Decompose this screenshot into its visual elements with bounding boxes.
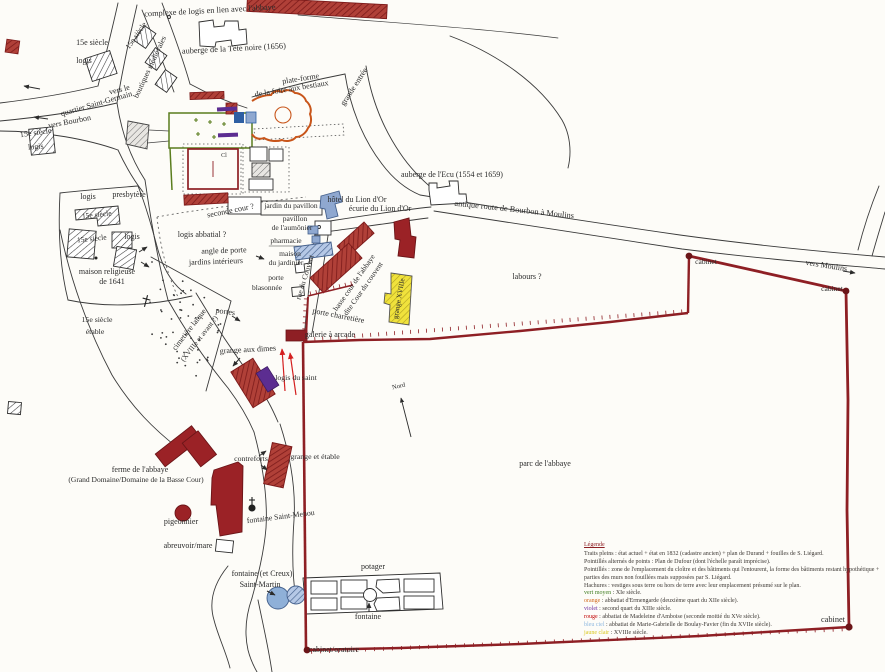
abbey-site-plan: complexe de logis en lien avec l'abbayea… — [0, 0, 885, 672]
galerie-a-arcade-building — [286, 330, 307, 341]
map-label: maison religieuse — [79, 267, 136, 276]
fontaine-saint-menou-icon — [249, 497, 255, 511]
map-label: cabinet/oratoire — [309, 645, 360, 654]
cemetery-cross-icon — [141, 294, 152, 308]
map-label: grange et étable — [290, 452, 340, 461]
map-label: de 1641 — [99, 277, 125, 286]
legend-line: Pointillés : zone de l'emplacement du cl… — [584, 567, 884, 583]
map-label: logis du saint — [275, 373, 317, 382]
legend-color-key: jaune clair — [584, 630, 609, 636]
legend-color-key: violet — [584, 606, 598, 612]
arrow-saint-germain — [24, 86, 40, 89]
red-arrow-logis-saint — [282, 349, 285, 391]
pillar-17c-blue — [246, 112, 256, 123]
map-label: cabinet — [695, 257, 718, 266]
map-label: labours ? — [512, 272, 542, 281]
ecurie-building — [394, 218, 416, 258]
map-label: du jardinier — [269, 258, 304, 267]
legend-title: Légende — [584, 542, 884, 550]
legend-line: bleu ciel : abbatiat de Marie-Gabrielle … — [584, 622, 884, 630]
map-label: fontaine — [355, 612, 382, 621]
map-label: galerie à arcade — [305, 330, 356, 339]
map-label: potager — [361, 562, 385, 571]
fontaine-saint-martin — [267, 587, 289, 609]
legend-line: Pointillés alternés de points : Plan de … — [584, 559, 884, 567]
small-building — [7, 401, 21, 414]
legend-entries: Traits pleins : état actuel + état en 18… — [584, 551, 884, 638]
map-label: de l'aumônier — [272, 223, 313, 232]
potager-fountain — [364, 589, 377, 602]
map-label: fontaine (et Creux) — [232, 569, 293, 578]
map-label: pharmacie — [270, 236, 302, 245]
map-label: abreuvoir/mare — [164, 541, 213, 550]
grange-etable-building — [264, 443, 292, 488]
porch-tower — [126, 121, 149, 149]
map-label: 15e siècle — [76, 38, 108, 47]
arrow-grange-dimes — [233, 358, 240, 366]
legend-line: orange : abbatiat d'Ermengarde (deuxième… — [584, 598, 884, 606]
map-label: hôtel du Lion d'Or — [328, 195, 387, 204]
map-label: grange aux dimes — [219, 344, 276, 356]
map-label: logis — [28, 141, 44, 151]
map-label: étable — [86, 327, 105, 336]
map-label: vers Moulins — [805, 258, 848, 273]
map-label: parc de l'abbaye — [519, 459, 571, 468]
map-label: (Grand Domaine/Domaine de la Basse Cour) — [68, 475, 204, 484]
blue-annex — [312, 236, 320, 243]
map-label: jardins intérieurs — [188, 256, 243, 267]
map-label: porte — [268, 273, 284, 282]
map-label: logis abbatial ? — [178, 230, 227, 239]
map-label: auberge de l'Ecu (1554 et 1659) — [401, 170, 503, 179]
north-range-15c — [190, 91, 224, 99]
map-label: logis — [124, 232, 140, 241]
legend-line: rouge : abbatiat de Madeleine d'Amboise … — [584, 614, 884, 622]
map-label: complexe de logis en lien avec l'abbaye — [144, 3, 276, 19]
map-label: Saint-Martin — [240, 580, 281, 589]
map-label: logis — [80, 192, 96, 201]
map-label: angle de porte — [201, 245, 247, 256]
small-red-building — [5, 39, 20, 54]
legend-line: violet : second quart du XIIIe siècle. — [584, 606, 884, 614]
legend-color-key: vert moyen — [584, 590, 611, 596]
map-label: Cl — [221, 153, 227, 159]
boutique-building — [155, 70, 177, 93]
legend-line: Traits pleins : état actuel + état en 18… — [584, 551, 884, 559]
map-label: auberge de la Tête noire (1656) — [182, 41, 287, 55]
map-label: maison — [279, 249, 301, 258]
arrows — [24, 86, 855, 612]
abbey-church — [126, 90, 311, 205]
map-label: logis — [76, 56, 92, 65]
creux-saint-martin — [287, 586, 305, 604]
map-label: contreforts — [234, 454, 268, 463]
map-label: portes — [215, 306, 236, 318]
crossing-13c-purple — [218, 133, 238, 138]
east-range — [249, 147, 283, 190]
legend-line: jaune clair : XVIIIe siècle. — [584, 630, 884, 638]
apse-interior — [275, 107, 291, 123]
map-label: ferme de l'abbaye — [112, 465, 169, 474]
map-label: 15e siècle — [82, 315, 113, 324]
abreuvoir-mare — [215, 539, 233, 553]
map-label: quartier Saint-Germain — [60, 89, 134, 118]
legend-line: Hachures : vestiges sous terre ou hors d… — [584, 583, 884, 591]
arrow-bourbon — [34, 117, 48, 119]
pillar-17c-blue — [234, 112, 244, 123]
north-arrow — [401, 398, 411, 437]
legend-color-key: bleu ciel — [584, 622, 605, 628]
map-label: pigeonnier — [164, 517, 199, 526]
legend-color-key: orange — [584, 598, 600, 604]
map-label: cabinet — [821, 284, 844, 293]
map-label: Nord — [391, 382, 406, 392]
legend: Légende Traits pleins : état actuel + ét… — [584, 542, 884, 638]
south-range-red — [184, 193, 228, 205]
map-label: presbytère — [112, 190, 146, 199]
map-label: pavillon — [283, 214, 308, 223]
map-label: blasonnée — [252, 283, 283, 292]
arrow-maison-religieuse — [141, 262, 149, 267]
arrow-angle-de-porte — [256, 256, 264, 259]
legend-color-key: rouge — [584, 614, 598, 620]
map-label: jardin du pavillon — [263, 201, 318, 210]
map-label: grande entrée — [338, 66, 369, 108]
ferme-grande-building — [211, 462, 243, 536]
arrow-maison-religieuse — [139, 247, 147, 252]
map-label: 15e siècle — [76, 232, 107, 244]
map-label: écurie du Lion d'Or — [349, 204, 412, 213]
